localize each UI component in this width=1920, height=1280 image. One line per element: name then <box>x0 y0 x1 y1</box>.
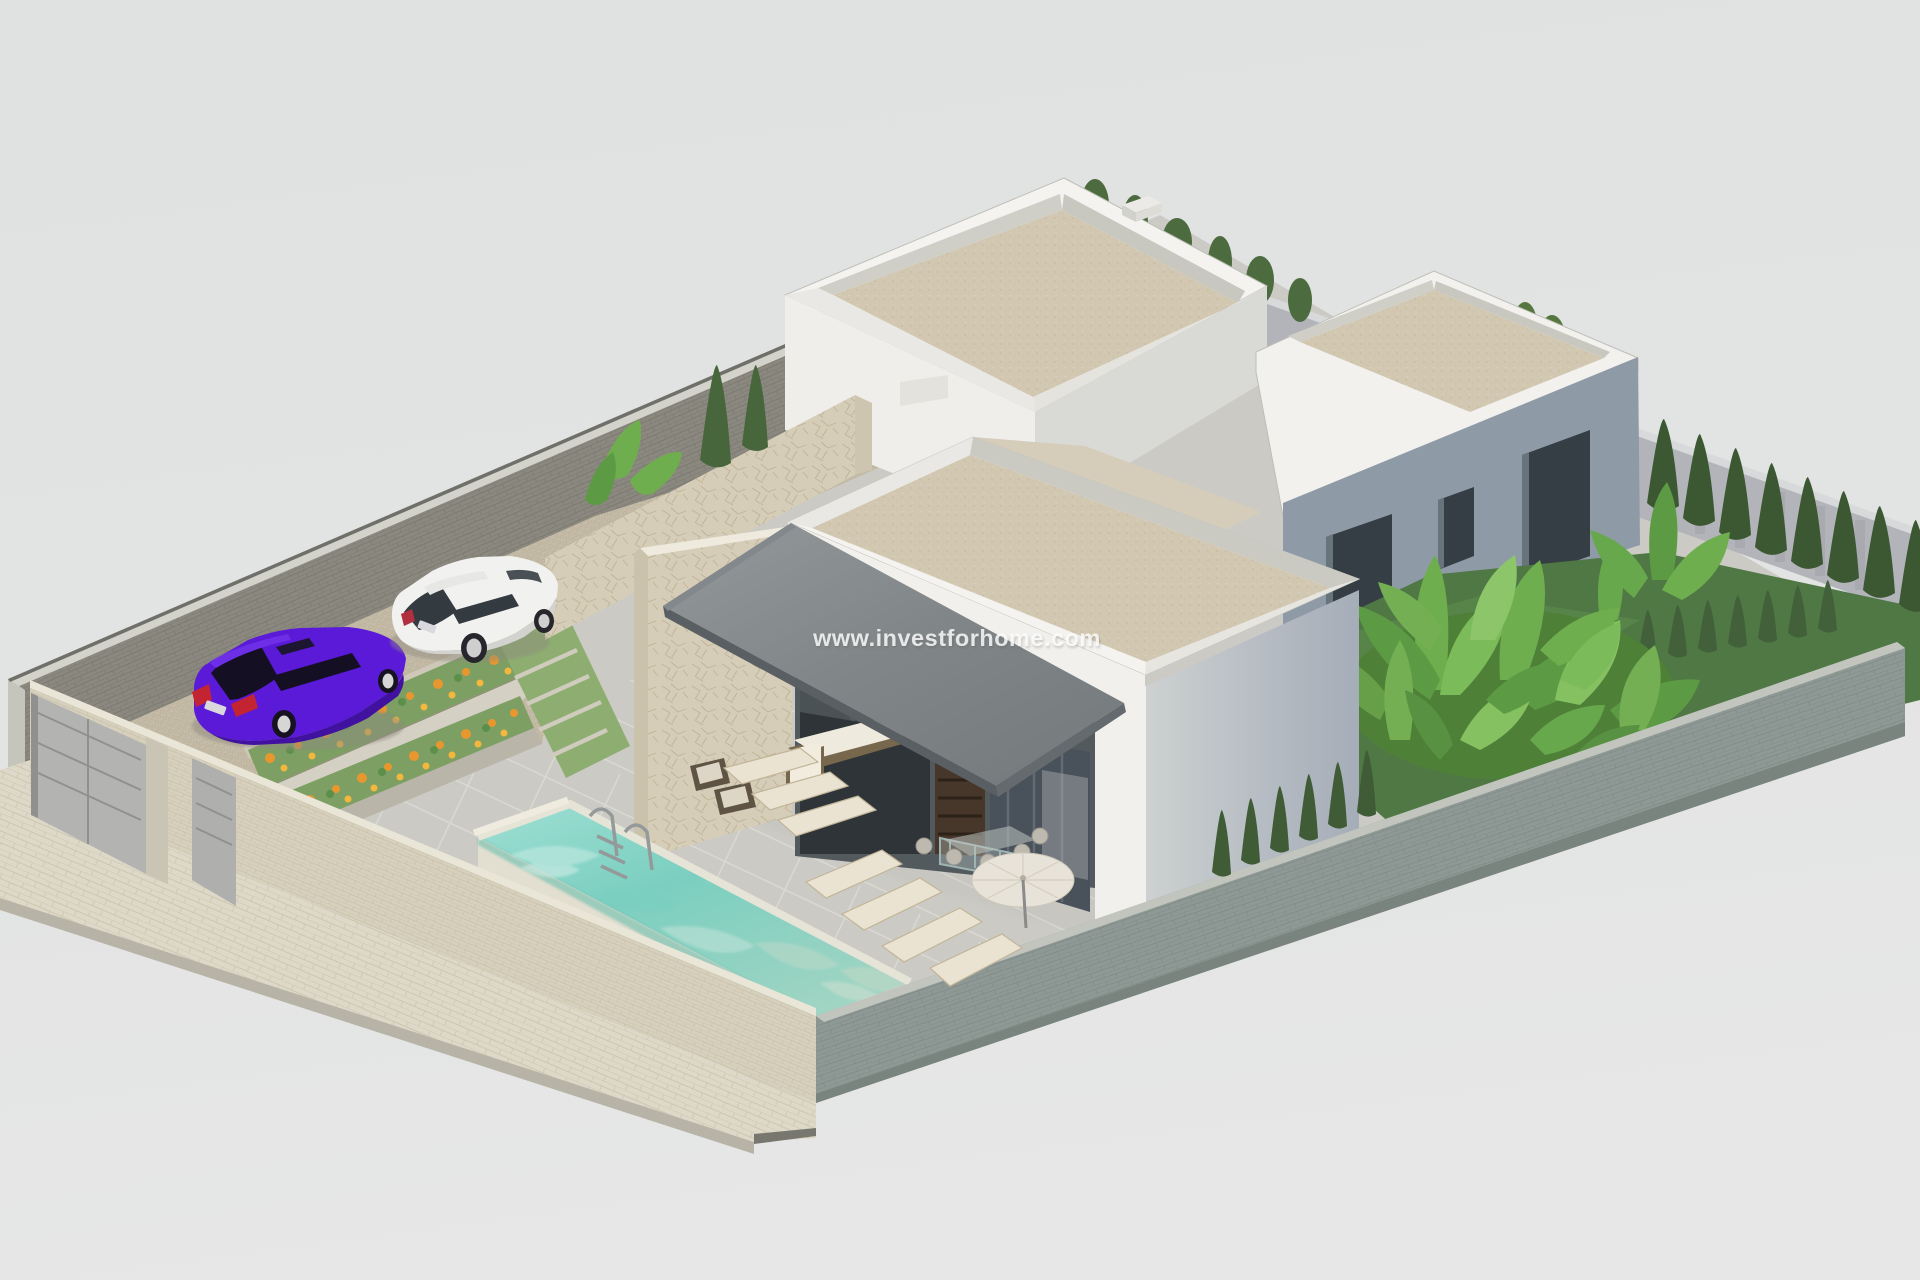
svg-text:www.investforhome.com: www.investforhome.com <box>812 625 1101 651</box>
